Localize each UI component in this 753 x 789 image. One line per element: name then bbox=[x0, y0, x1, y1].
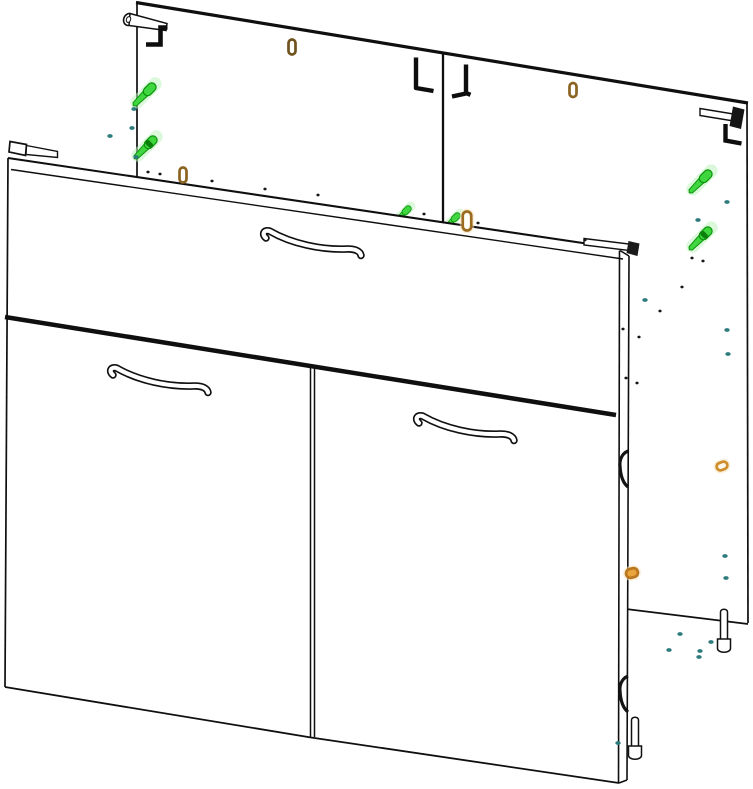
mark-dot bbox=[422, 213, 425, 216]
mark-dot bbox=[658, 310, 661, 313]
mark-dot bbox=[624, 377, 627, 380]
mark-dot bbox=[724, 200, 729, 204]
mark-dot bbox=[621, 328, 624, 331]
mark-dot bbox=[129, 126, 134, 130]
mark-dot bbox=[642, 298, 647, 302]
mark-dot bbox=[697, 649, 702, 653]
mark-dot bbox=[722, 554, 727, 558]
mark-dot bbox=[476, 222, 479, 225]
mark-dot bbox=[615, 741, 620, 745]
cam-pin-front-left bbox=[9, 142, 58, 158]
dowel-peg-top-right bbox=[570, 83, 577, 97]
mark-dot bbox=[263, 188, 266, 191]
mark-dot bbox=[146, 171, 149, 174]
mark-dot bbox=[583, 239, 586, 242]
mark-dot bbox=[133, 155, 138, 159]
mark-dot bbox=[725, 352, 730, 356]
front-assembly-surface bbox=[5, 158, 630, 783]
dowel-peg-left bbox=[180, 168, 187, 183]
mark-dot bbox=[107, 134, 112, 138]
mark-dot bbox=[158, 173, 161, 176]
mark-dot bbox=[701, 260, 704, 263]
assembly-diagram-page bbox=[0, 0, 753, 789]
cam-bolt-bottom bbox=[629, 717, 642, 759]
mark-dot bbox=[695, 218, 700, 222]
mark-dot bbox=[696, 655, 701, 659]
mark-dot bbox=[637, 336, 640, 339]
mark-dot bbox=[635, 382, 638, 385]
dowel-peg-center bbox=[460, 209, 475, 234]
mark-dot bbox=[677, 632, 682, 636]
mark-dot bbox=[723, 576, 728, 580]
mark-dot bbox=[316, 194, 319, 197]
mark-dot bbox=[690, 257, 693, 260]
mark-dot bbox=[210, 180, 213, 183]
back-panel-right-edge bbox=[747, 102, 748, 623]
mark-dot bbox=[131, 107, 136, 111]
mark-dot bbox=[680, 286, 683, 289]
mark-dot bbox=[708, 640, 713, 644]
cabinet-assembly-diagram bbox=[0, 0, 753, 789]
mark-dot bbox=[724, 328, 729, 332]
mark-dot bbox=[666, 648, 671, 652]
dowel-peg-top-center bbox=[289, 40, 296, 55]
front-right-inner-edge bbox=[619, 251, 620, 783]
